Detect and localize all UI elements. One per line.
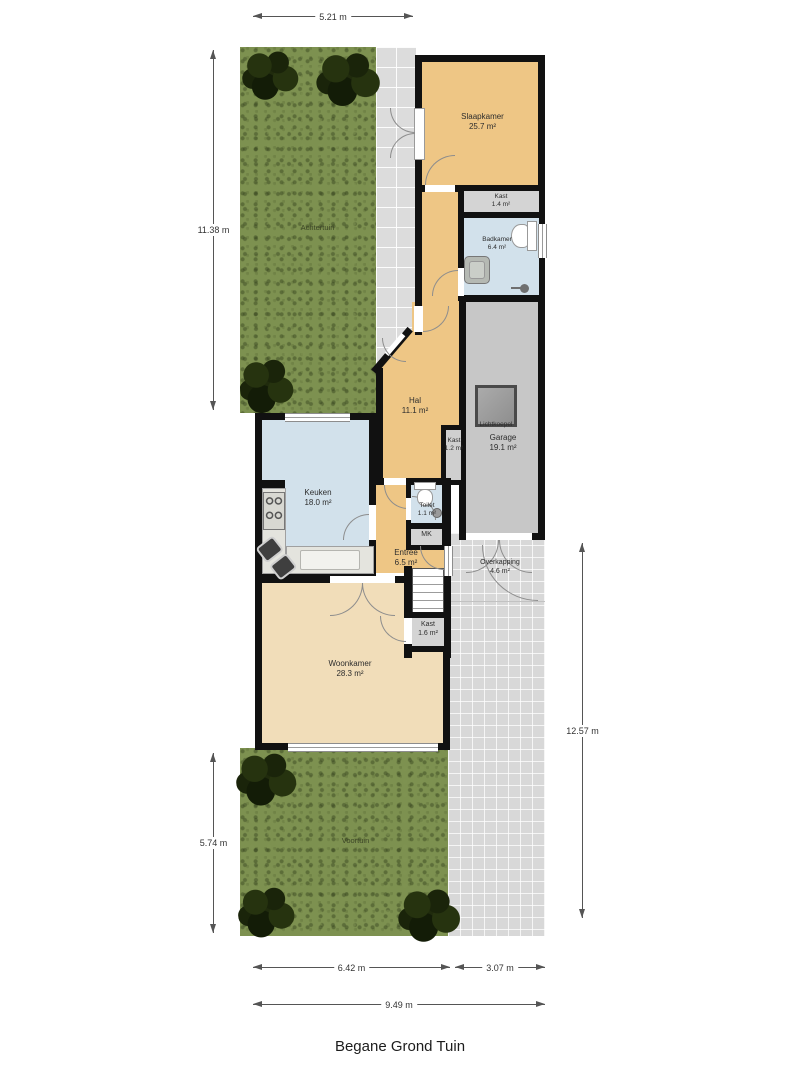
room-label-overkapping: Overkapping4.6 m² xyxy=(463,559,537,577)
room-label-entree: Entree6.5 m² xyxy=(371,548,441,569)
wall-segment xyxy=(260,480,285,488)
wall-segment xyxy=(404,566,412,658)
room-label-hal: Hal11.1 m² xyxy=(380,396,450,417)
front-door xyxy=(444,546,453,576)
room-label-kast-slaapkamer: Kast1.4 m² xyxy=(466,193,536,209)
door-opening xyxy=(369,505,376,540)
garden-label-achtertuin: Achtertuin xyxy=(280,223,355,232)
dimension-bottom-right: 3.07 m xyxy=(455,963,545,972)
room-label-kast-hal: Kast1.2 m² xyxy=(441,437,467,453)
tree-icon xyxy=(240,357,294,417)
dimension-top: 5.21 m xyxy=(253,12,413,21)
room-label-toilet: Toilet1.1 m² xyxy=(407,502,447,518)
tree-icon xyxy=(242,50,300,102)
tree-icon xyxy=(236,752,298,808)
door-opening xyxy=(384,478,406,485)
window xyxy=(285,413,350,422)
drain-icon xyxy=(520,284,529,293)
window xyxy=(538,224,547,258)
door-opening xyxy=(466,533,532,540)
tree-icon xyxy=(238,886,296,940)
door-opening xyxy=(414,306,423,332)
stairs xyxy=(412,568,444,616)
room-label-slaapkamer: Slaapkamer25.7 m² xyxy=(430,112,535,133)
door-opening xyxy=(414,108,425,160)
dimension-right: 12.57 m xyxy=(578,543,587,918)
door-opening xyxy=(330,576,395,583)
room-label-garage: Garage19.1 m² xyxy=(468,433,538,454)
shower-tray xyxy=(469,261,485,279)
room-label-kast-trap: Kast1.6 m² xyxy=(406,621,450,639)
wall-segment xyxy=(369,478,451,485)
plan-title: Begane Grond Tuin xyxy=(0,1038,800,1055)
door-opening xyxy=(425,185,455,192)
room-label-mk: MK xyxy=(411,531,442,540)
side-path xyxy=(376,47,416,373)
dimension-bottom-left: 6.42 m xyxy=(253,963,450,972)
dimension-bottom-total: 9.49 m xyxy=(253,1000,545,1009)
floor-plan-canvas: Slaapkamer25.7 m² Kast1.4 m² Badkamer6.4… xyxy=(0,0,800,1067)
drain-arm xyxy=(511,287,521,289)
room-kast-hal xyxy=(441,425,466,485)
covered-area-edge xyxy=(448,601,545,602)
tree-icon xyxy=(316,52,382,108)
tree-icon xyxy=(398,888,462,944)
wall-segment xyxy=(376,368,383,485)
garden-label-voortuin: Voortuin xyxy=(318,836,393,845)
room-label-badkamer: Badkamer6.4 m² xyxy=(462,236,532,252)
room-label-woonkamer: Woonkamer28.3 m² xyxy=(315,659,385,680)
room-label-keuken: Keuken18.0 m² xyxy=(283,488,353,509)
dimension-left-upper: 11.38 m xyxy=(209,50,218,410)
room-label-lichtkoepel: Lichtkoepel xyxy=(460,421,532,429)
window xyxy=(288,743,438,752)
dimension-left-lower: 5.74 m xyxy=(209,753,218,933)
